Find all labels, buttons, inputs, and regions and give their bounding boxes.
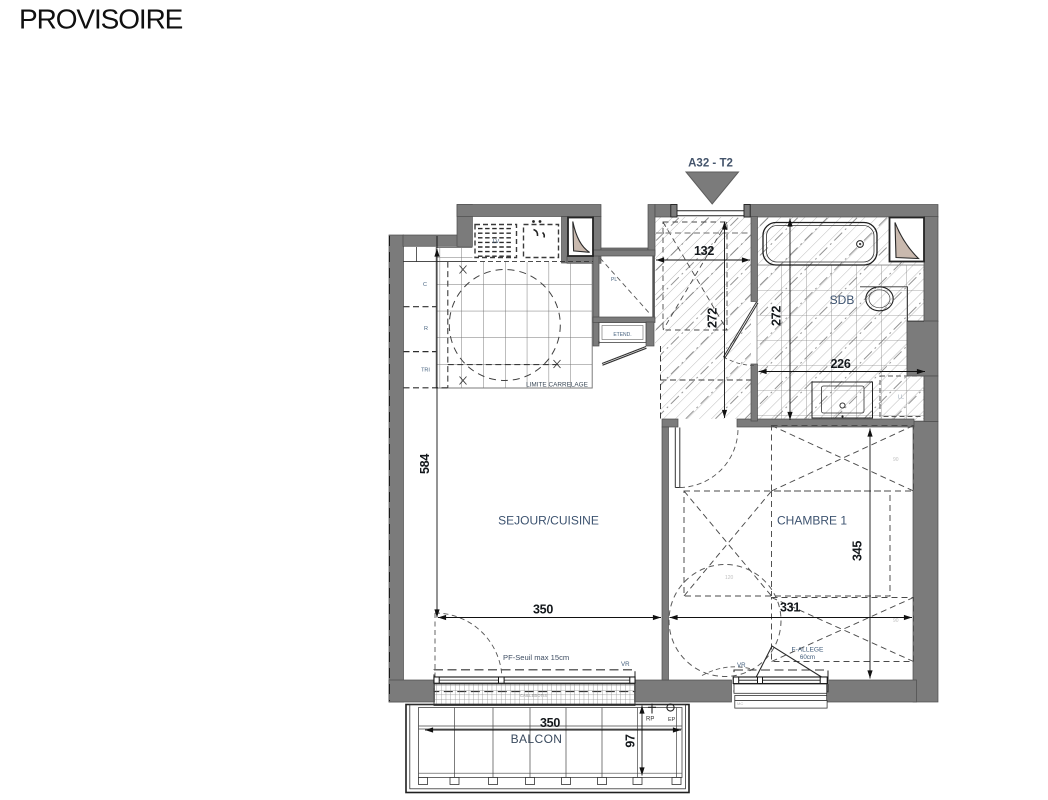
- svg-text:331: 331: [780, 601, 800, 615]
- svg-text:PROVISOIRE: PROVISOIRE: [19, 4, 183, 35]
- svg-text:ETEND.: ETEND.: [613, 332, 631, 338]
- svg-text:C: C: [423, 282, 427, 288]
- svg-text:350: 350: [540, 716, 560, 730]
- svg-text:584: 584: [418, 454, 432, 474]
- svg-text:226: 226: [831, 357, 851, 371]
- svg-text:TRI: TRI: [421, 368, 430, 374]
- svg-text:350: 350: [533, 603, 553, 617]
- svg-text:272: 272: [770, 306, 784, 326]
- svg-text:132: 132: [694, 244, 714, 258]
- svg-text:60cm: 60cm: [800, 654, 815, 661]
- svg-text:120: 120: [725, 575, 734, 581]
- svg-text:LV: LV: [493, 239, 500, 245]
- svg-text:BALCON: BALCON: [511, 732, 563, 746]
- svg-text:R: R: [424, 326, 428, 332]
- svg-text:VR: VR: [737, 662, 746, 669]
- svg-text:97: 97: [624, 734, 638, 748]
- svg-text:VR: VR: [621, 661, 630, 668]
- svg-text:RP: RP: [646, 717, 654, 723]
- svg-text:SEJOUR/CUISINE: SEJOUR/CUISINE: [498, 514, 599, 528]
- svg-text:345: 345: [851, 541, 865, 561]
- svg-text:SDB: SDB: [830, 293, 855, 307]
- svg-text:PL: PL: [611, 277, 617, 283]
- svg-text:90: 90: [893, 618, 899, 624]
- svg-text:LIMITE CARRELAGE: LIMITE CARRELAGE: [526, 382, 588, 389]
- svg-text:LL: LL: [898, 395, 904, 401]
- svg-text:90: 90: [893, 457, 899, 463]
- svg-text:A32 - T2: A32 - T2: [688, 158, 733, 170]
- svg-text:EP: EP: [668, 717, 676, 723]
- svg-text:272: 272: [706, 308, 720, 328]
- svg-text:CAILLEBOTIS: CAILLEBOTIS: [520, 693, 547, 698]
- svg-text:CHAMBRE 1: CHAMBRE 1: [777, 514, 847, 528]
- svg-text:MC: MC: [737, 701, 743, 706]
- svg-text:F-ALLEGE: F-ALLEGE: [792, 647, 824, 654]
- svg-text:PF-Seuil max 15cm: PF-Seuil max 15cm: [503, 653, 569, 662]
